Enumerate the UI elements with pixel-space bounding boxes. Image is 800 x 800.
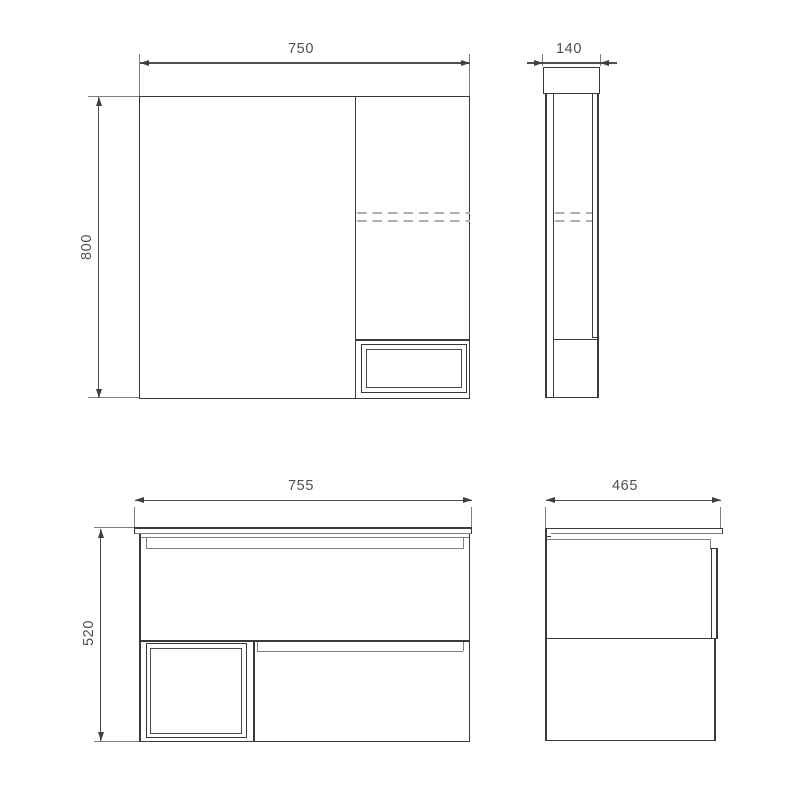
dim-140-arrow-left [534,60,543,66]
dim-520-arrow-bottom [98,732,104,741]
dim-750-arrow-right [461,60,470,66]
dim-140-label: 140 [556,41,582,57]
dim-520-label-wrap: 520 [80,613,96,653]
vanity-front-countertop-bottom-line [135,533,472,534]
dim-520-arrow-top [98,529,104,538]
vanity-side-lower-front-edge [714,638,716,741]
mirror-side-glass-shelf-dashed-line-2 [555,220,593,222]
dim-755-arrow-right [463,497,472,503]
vanity-front-gap-notch-right [463,537,464,549]
dim-755-line [135,500,472,501]
vanity-side-bottom-line [545,740,716,742]
dim-465-extension-left [545,507,546,528]
mirror-side-back-inner-line [553,94,554,398]
vanity-side-countertop-right-tick [722,528,723,535]
mirror-side-back-outer-line [545,94,547,398]
dim-800-arrow-bottom [96,389,102,398]
vanity-front-door-inner [150,648,242,734]
dim-755-extension-left [134,507,135,528]
vanity-front-drawer2-notch-left [257,642,258,651]
vanity-side-mid-line [545,638,717,640]
vanity-front-bottom-line [139,741,470,743]
dim-465-label: 465 [612,478,638,494]
vanity-front-drawer2-top-line [257,651,463,652]
vanity-front-drawer2-notch-right [463,642,464,651]
vanity-front-drawer-top-line [146,548,464,549]
vanity-front-left-edge [139,534,141,742]
dim-465-arrow-right [712,497,721,503]
dim-750-arrow-left [140,60,149,66]
dim-800-label-wrap: 800 [78,227,94,267]
dim-755-arrow-left [135,497,144,503]
dim-140-arrow-right [600,60,609,66]
dim-520-line [100,529,101,742]
mirror-front-door-divider [355,96,357,398]
mirror-side-door-back-line [592,94,593,337]
vanity-front-right-edge [469,534,471,742]
mirror-front-glass-shelf-dashed-line-1 [357,212,470,214]
vanity-front-gap-notch-left [146,537,147,549]
mirror-side-bottom-line [545,397,599,399]
vanity-front-section-divider [253,642,255,742]
vanity-front-countertop-right-tick [471,527,472,534]
dim-520-label: 520 [81,620,97,646]
dim-755-label: 755 [288,478,314,494]
mirror-side-door-front-line [597,94,599,398]
vanity-side-drawer-front-back-line [711,548,712,639]
dim-800-line [98,97,99,399]
mirror-front-shelf-section-line [355,339,470,341]
mirror-side-glass-shelf-dashed-line-1 [555,212,593,214]
dim-750-line [140,62,470,63]
vanity-side-drawer-front-face-line [716,548,717,639]
vanity-side-body-top-line [545,539,710,540]
mirror-side-door-bottom-tick [592,337,599,338]
mirror-side-shelfbox-top-line [553,339,599,340]
vanity-side-back-edge [545,528,547,741]
vanity-side-countertop-bottom-line [551,533,724,534]
vanity-front-drawer-bottom-line [139,640,470,642]
dim-800-label: 800 [79,234,95,260]
mirror-front-glass-shelf-dashed-line-2 [357,220,470,222]
vanity-front-body-top-line [139,537,470,538]
vanity-side-countertop-top-line [545,528,723,530]
dim-750-label: 750 [288,41,314,57]
mirror-front-open-shelf-inner [366,349,463,389]
vanity-front-countertop-top-line [134,527,472,529]
dim-465-line [546,500,721,501]
vanity-front-countertop-left-tick [134,527,135,534]
dim-755-extension-right [471,507,472,528]
mirror-side-top-cap [543,67,600,95]
dim-465-arrow-left [546,497,555,503]
technical-drawing-canvas: 750 800 140 [0,0,800,800]
dim-465-extension-right [720,507,721,529]
dim-800-arrow-top [96,97,102,106]
